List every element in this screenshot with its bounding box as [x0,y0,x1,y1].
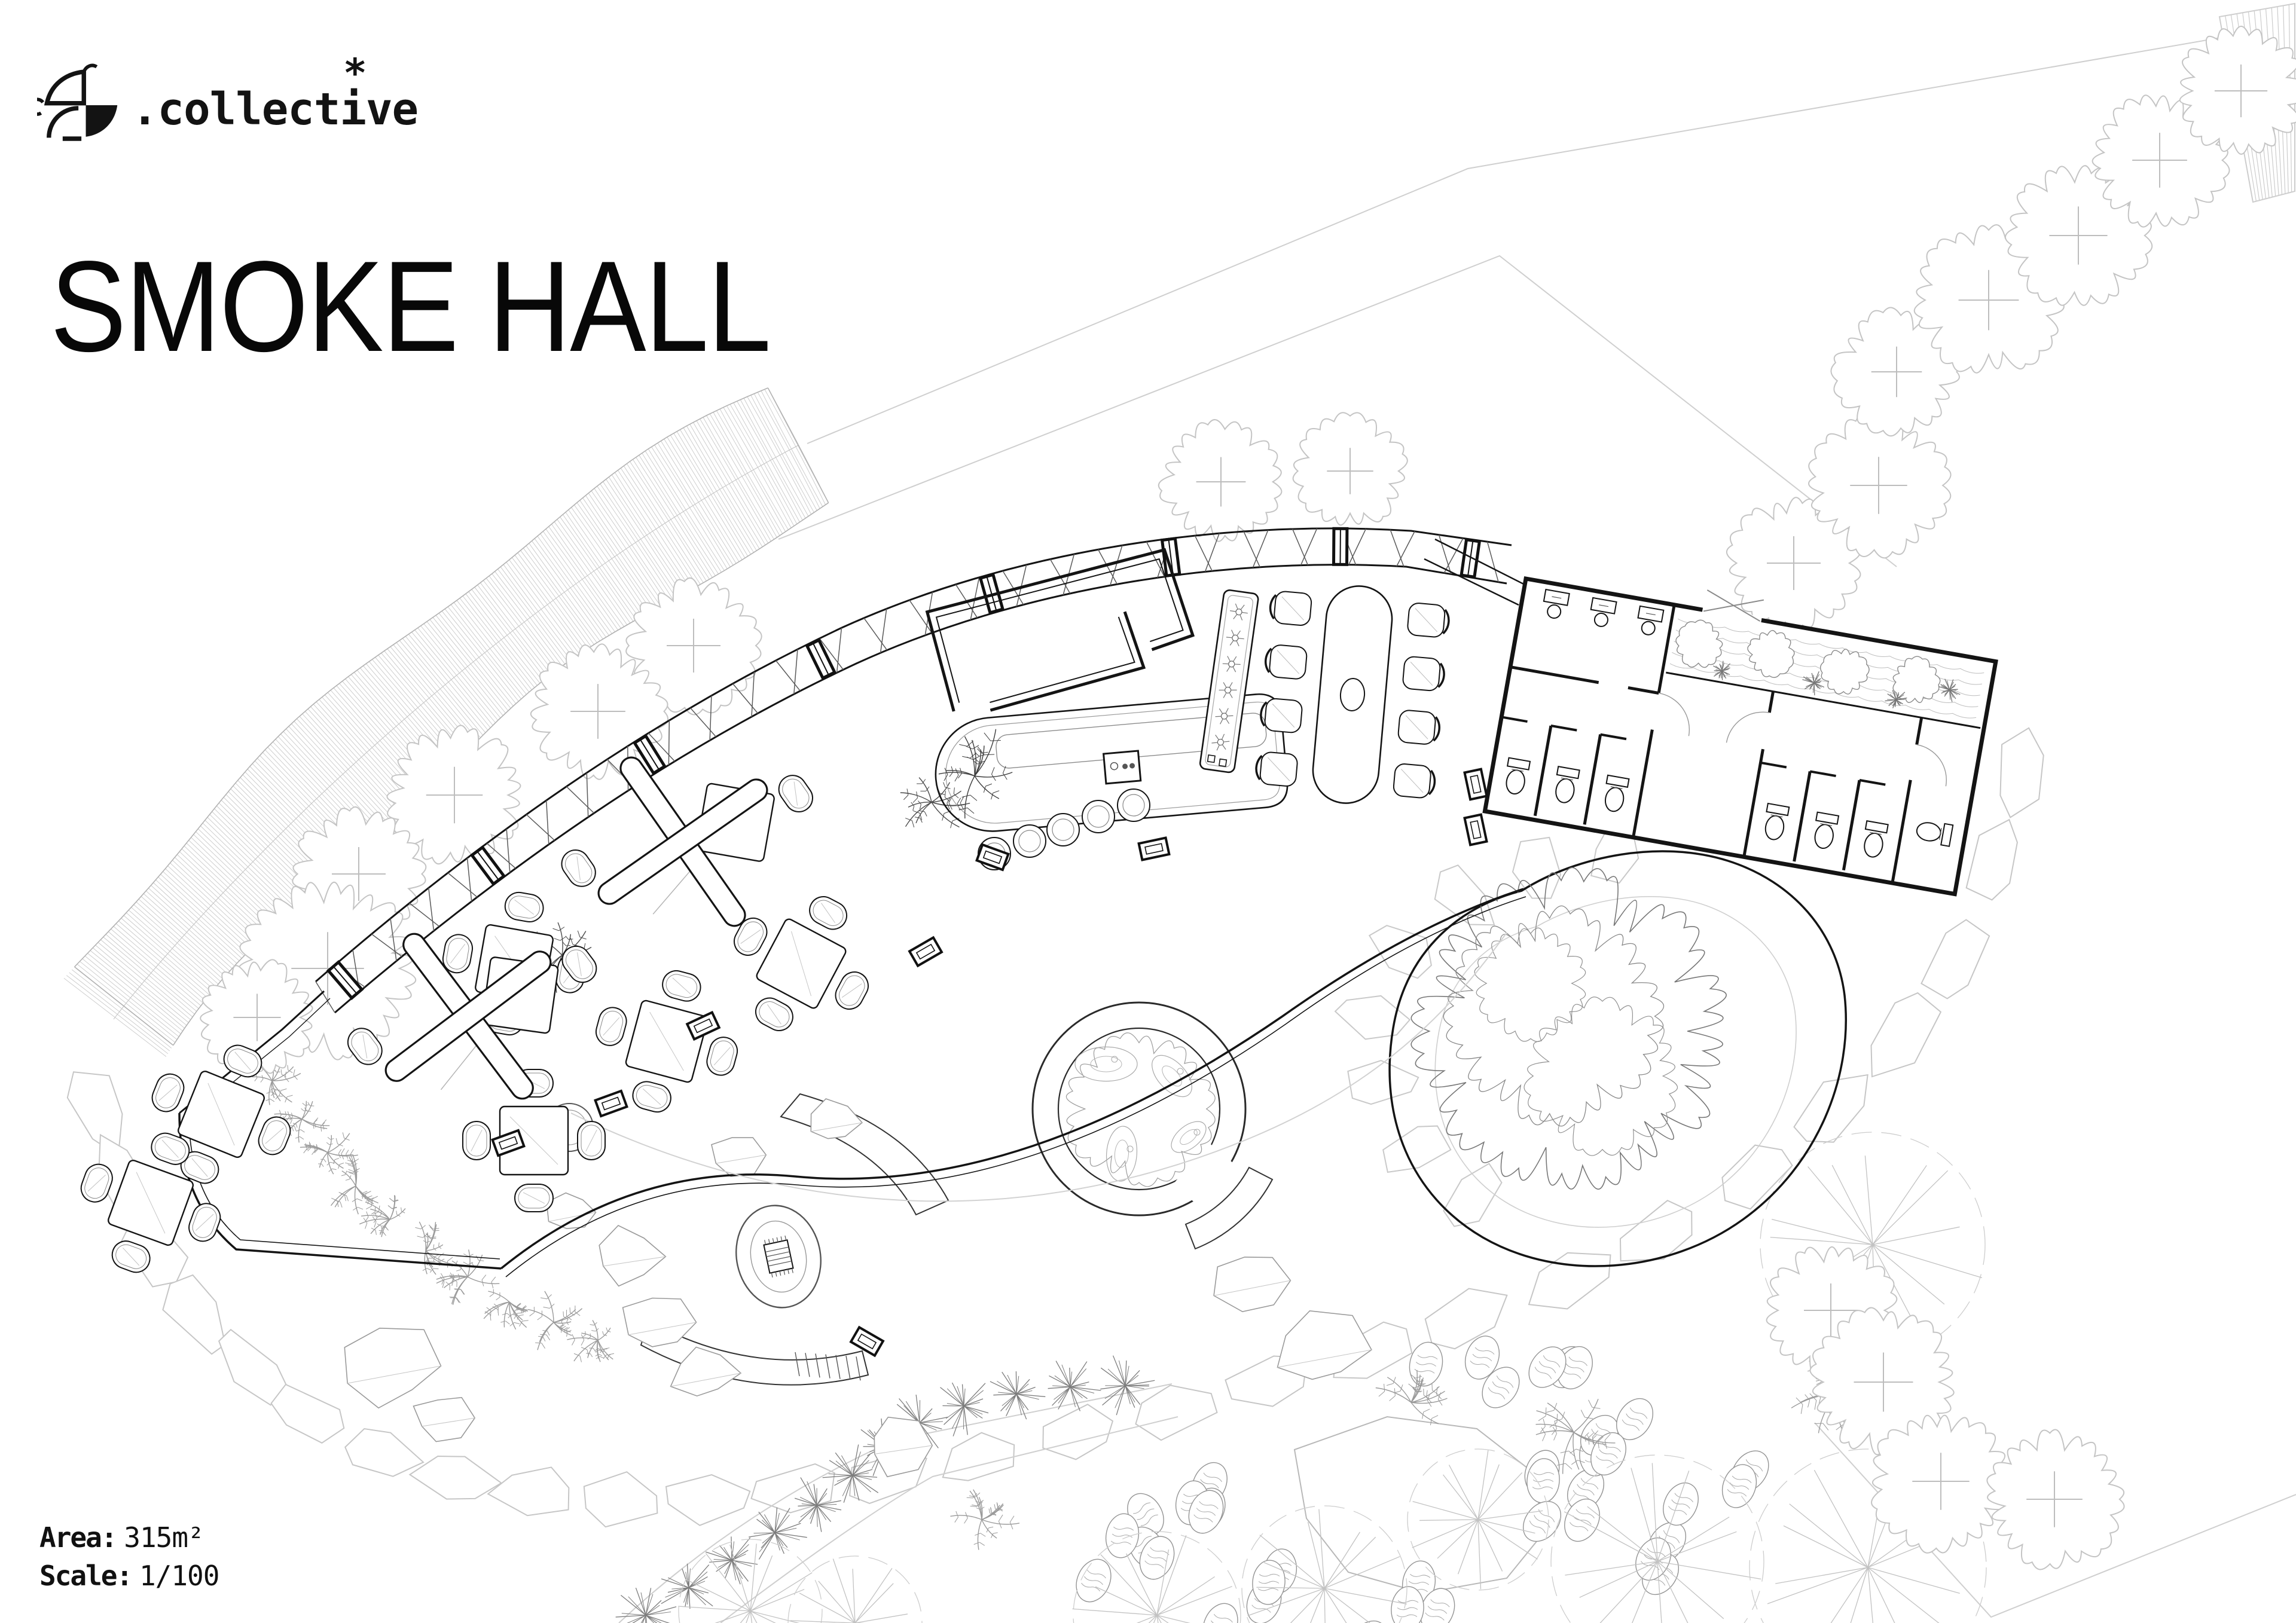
truss-post [1333,528,1347,564]
bar-stool [1047,814,1079,846]
scale-value: 1/100 [139,1560,219,1592]
pebble-shrub [1406,1339,1446,1389]
pebble-shrub [1558,1493,1607,1547]
stepping-stone [1375,1118,1451,1182]
planter-box [1199,589,1259,773]
pebble-shrub [1196,1598,1244,1623]
stepping-stone [406,1444,505,1511]
chair-icon [578,1121,605,1160]
dining-chair [1255,751,1298,787]
chair-icon [148,1070,188,1116]
chair-icon [630,1078,674,1115]
chair-icon [515,1184,553,1212]
chair-icon [556,845,600,892]
bench-icon [909,937,942,965]
dining-chair [1269,591,1312,626]
water-feature [1033,1002,1272,1249]
chair-icon [463,1121,490,1160]
stepping-stone [1785,1057,1885,1156]
bench-icon [1139,838,1170,860]
bar-stool [1082,800,1115,833]
truss-post [807,640,835,678]
bar-stool [1013,825,1046,857]
dining-chair [1264,644,1307,680]
large-tree-canopy [1524,997,1677,1156]
truss-post [1461,540,1479,577]
pebble-planting [1070,1331,1776,1623]
restroom-block [1485,559,1999,894]
pebble-shrub [1516,1494,1569,1548]
chair-icon [704,1034,740,1078]
plan-stats: Area: 315m² Scale: 1/100 [39,1518,219,1595]
chair-icon [660,968,704,1004]
rock-icon [1214,1257,1290,1312]
area-value: 315m² [124,1521,203,1554]
tree-icon [1159,420,1282,542]
area-row: Area: 315m² [39,1518,219,1557]
rock-icon [599,1225,665,1286]
smoke-room [926,548,1199,719]
area-label: Area: [39,1521,116,1554]
brand-asterisk-icon: * [343,50,367,96]
stepping-stone [1985,723,2056,823]
stepping-stone [486,1460,574,1521]
table-top [1310,583,1394,806]
brand-logo: .collective * [37,57,491,153]
logo-mark-icon [37,61,121,149]
dining-chair [1402,656,1445,692]
palm-planter [935,728,1016,821]
fire-pit [727,1197,831,1315]
stepping-stone [1961,812,2029,903]
brand-name: .collective [132,84,418,135]
bar-stool [1118,789,1150,821]
bench-icon [851,1327,883,1355]
chair-icon [593,1004,630,1049]
radial-palm-icon [788,1556,922,1623]
chair-icon [185,1200,224,1245]
palm-trees [678,1132,1986,1623]
stepping-stone [665,1473,752,1527]
stepping-stone [748,1462,838,1517]
bench-icon [596,1091,627,1116]
bench-icon [1465,815,1487,845]
pebble-shrub [1070,1554,1117,1607]
chair-icon [774,770,818,817]
large-tree-canopy [1474,928,1586,1041]
chair-icon [751,993,798,1035]
page-title: SMOKE HALL [50,242,770,371]
stepping-stone [1505,833,1566,906]
stepping-stone [1436,1157,1511,1237]
dining-chair [1393,763,1436,799]
stepping-stone [583,1471,658,1528]
dining-chair [1407,603,1450,638]
scale-label: Scale: [39,1560,132,1592]
chair-icon [805,892,851,934]
bench-icon [1465,769,1487,800]
stepping-stone [1360,914,1442,985]
stepping-stone [1709,1134,1799,1218]
stepping-stone [1919,914,1995,1004]
dining-table [1254,579,1451,811]
table-group [463,1069,605,1212]
chair-icon [831,967,873,1014]
stepping-stone [935,1426,1019,1486]
chair-icon [503,890,545,924]
dining-chair [1397,710,1440,745]
scale-row: Scale: 1/100 [39,1557,219,1595]
truss-post [472,847,504,884]
rock-icon [344,1328,441,1408]
pebble-shrub [1657,1477,1705,1531]
bar-station [1104,751,1141,784]
chair-icon [255,1113,295,1159]
stepping-stone [1516,1237,1623,1322]
floor-plan-page: .collective * SMOKE HALL Area: 315m² Sca… [0,0,2296,1623]
